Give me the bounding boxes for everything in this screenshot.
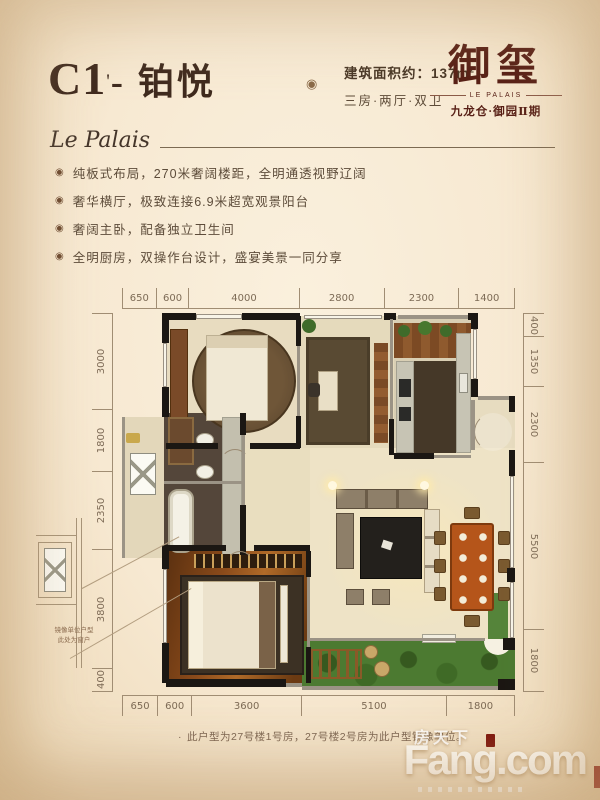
wall [297, 346, 300, 416]
band-line-right [526, 95, 562, 96]
wall [434, 455, 471, 458]
window [473, 329, 477, 379]
wall [250, 443, 300, 449]
shower-stall [168, 417, 194, 465]
washing-machine [130, 453, 156, 495]
brand-band: LE PALAIS [430, 92, 562, 99]
dimension-segment: 1350 [524, 337, 544, 387]
garden-trellis [308, 649, 362, 679]
entrance-door-arc [474, 413, 512, 451]
watermark-dots [418, 787, 528, 792]
band-line-left [430, 95, 466, 96]
footnote-bullet: · [178, 731, 182, 743]
wall [162, 313, 169, 343]
feature-text: 全明厨房，双操作台设计，盛宴美景一同分享 [73, 247, 343, 266]
window [304, 315, 382, 319]
wall [509, 450, 515, 476]
watermark-logo-text: Fang.com [404, 736, 586, 784]
developer-name: 九龙仓·御园Ⅱ期 [430, 103, 562, 119]
floorplan-figure: 6506004000280023001400 65060036005100180… [30, 278, 575, 748]
dimension-segment: 600 [158, 696, 192, 716]
study-shelf [374, 343, 388, 443]
wall [471, 313, 478, 329]
utility-cushion [126, 433, 140, 443]
ottoman [346, 589, 364, 605]
master-bed [188, 581, 276, 669]
feature-item: ◉ 奢阔主卧，配备独立卫生间 [55, 219, 367, 238]
flower-dot-icon: ◉ [306, 76, 317, 92]
mirror-unit-detail: 镜像单位户型 此处为窗户 [30, 518, 122, 678]
fang-watermark: 房天下 Fang.com [348, 724, 588, 796]
kitchen-oven [399, 407, 411, 421]
dining-chair [498, 531, 510, 545]
sofa-side-left [336, 513, 354, 569]
bedroom-door-arc [220, 449, 250, 479]
wall [394, 453, 434, 459]
garden-planter [374, 661, 390, 677]
window [163, 343, 167, 387]
wall [240, 505, 246, 555]
balcony-rail [122, 417, 125, 558]
wall [471, 379, 478, 397]
wall [242, 435, 245, 505]
dining-chair [498, 587, 510, 601]
wall [498, 679, 515, 690]
dining-chair [464, 615, 480, 627]
balcony-plant [418, 321, 432, 335]
dining-chair [464, 507, 480, 519]
dimension-segment: 600 [157, 288, 190, 308]
wall [254, 545, 310, 551]
edge-red-mark [594, 766, 600, 788]
balcony-rail [302, 686, 515, 690]
floor-lamp [420, 481, 429, 490]
mirror-window-symbol [44, 548, 66, 592]
wall [509, 396, 515, 412]
feature-text: 奢阔主卧，配备独立卫生间 [73, 219, 235, 238]
feature-text: 纯板式布局，270米奢阔楼距，全明通透视野辽阔 [73, 163, 367, 182]
bullet-dot-icon: ◉ [55, 195, 64, 206]
wall [390, 319, 393, 419]
floor-lamp [328, 481, 337, 490]
chaise-lounge [424, 509, 440, 593]
bullet-dot-icon: ◉ [55, 251, 64, 262]
dining-chair [434, 587, 446, 601]
brand-logo: 御玺 LE PALAIS 九龙仓·御园Ⅱ期 [430, 44, 562, 119]
wall [166, 545, 226, 551]
hallway-floor [244, 448, 310, 551]
dimension-segment: 3000 [92, 313, 112, 410]
balcony-rail [398, 315, 468, 319]
wall [306, 551, 311, 577]
dimension-segment: 1800 [447, 696, 515, 716]
brand-logo-chinese: 御玺 [430, 44, 562, 90]
bathroom-counter [222, 417, 242, 555]
unit-name: - 铂悦 [111, 62, 216, 102]
signature-rule: Le Palais [50, 128, 555, 153]
wall [307, 577, 310, 647]
study-desk [318, 371, 338, 411]
dimension-bottom: 650600360051001800 [122, 695, 515, 716]
window [196, 314, 242, 319]
master-bench [280, 585, 288, 663]
wall [242, 313, 300, 320]
wall [296, 316, 301, 346]
window [163, 569, 167, 643]
bathtub [168, 489, 194, 553]
dimension-segment: 1800 [92, 410, 112, 472]
dimension-segment: 1400 [459, 288, 515, 308]
dining-chair [434, 559, 446, 573]
bullet-dot-icon: ◉ [55, 223, 64, 234]
bedroom2-bed [206, 335, 268, 421]
study-chair [308, 383, 320, 397]
feature-item: ◉ 全明厨房，双操作台设计，盛宴美景一同分享 [55, 247, 367, 266]
wall [166, 679, 286, 687]
sink-basin [196, 465, 214, 479]
dimension-segment: 4000 [189, 288, 299, 308]
floorplan-drawing [122, 313, 515, 692]
study-plant [302, 319, 316, 333]
wall [471, 400, 475, 450]
flyer-page: C1'- 铂悦 ◉ 建筑面积约：137m2 三房·两厅·双卫 御玺 LE PAL… [0, 0, 600, 800]
window [510, 582, 514, 638]
kitchen-stove [399, 379, 411, 397]
dimension-segment: 2800 [300, 288, 385, 308]
unit-code: C1 [48, 53, 106, 104]
dimension-segment: 650 [122, 696, 158, 716]
page-title: C1'- 铂悦 [48, 52, 216, 105]
feature-text: 奢华横厅，极致连接6.9米超宽观景阳台 [73, 191, 309, 210]
kitchen-counter-right [456, 333, 471, 453]
dimension-segment: 2300 [524, 387, 544, 463]
dimension-segment: 400 [524, 313, 544, 337]
garden-planter [364, 645, 378, 659]
sliding-door-rail [310, 638, 485, 641]
dimension-segment: 1800 [524, 630, 544, 692]
wall [503, 638, 515, 650]
mirror-note-line: 镜像单位户型 [30, 626, 118, 636]
feature-list: ◉ 纯板式布局，270米奢阔楼距，全明通透视野辽阔 ◉ 奢华横厅，极致连接6.9… [55, 163, 367, 275]
wall [164, 481, 242, 484]
dimension-top: 6506004000280023001400 [122, 288, 515, 309]
dimension-segment: 3600 [192, 696, 302, 716]
dimension-right: 4001350230055001800 [523, 313, 544, 692]
signature-script: Le Palais [50, 128, 150, 153]
wall [286, 683, 302, 687]
wall [507, 568, 515, 582]
mirror-note-line: 此处为窗户 [30, 636, 118, 646]
master-door-arc [226, 551, 254, 579]
dining-chair [434, 531, 446, 545]
wall [389, 419, 394, 455]
mirror-note: 镜像单位户型 此处为窗户 [30, 626, 118, 647]
kitchen-dark-floor [414, 361, 456, 453]
feature-item: ◉ 纯板式布局，270米奢阔楼距，全明通透视野辽阔 [55, 163, 367, 182]
balcony-plant [398, 325, 410, 337]
dining-table [450, 523, 494, 611]
window [510, 476, 514, 568]
ottoman [372, 589, 390, 605]
brand-logo-english: LE PALAIS [470, 92, 523, 99]
detail-tick [36, 535, 76, 536]
balcony-plant [440, 325, 452, 337]
sofa-back-row [336, 489, 428, 509]
wall [162, 387, 169, 417]
dimension-segment: 5100 [302, 696, 447, 716]
dimension-segment: 650 [122, 288, 157, 308]
bullet-dot-icon: ◉ [55, 167, 64, 178]
wall [306, 647, 311, 683]
wall [166, 443, 218, 449]
dimension-segment: 2300 [385, 288, 460, 308]
kitchen-sink [459, 373, 468, 393]
wall [240, 413, 246, 435]
horizontal-rule [160, 147, 555, 148]
feature-item: ◉ 奢华横厅，极致连接6.9米超宽观景阳台 [55, 191, 367, 210]
dimension-segment: 5500 [524, 463, 544, 629]
detail-tick [36, 604, 76, 605]
wall [162, 643, 169, 683]
